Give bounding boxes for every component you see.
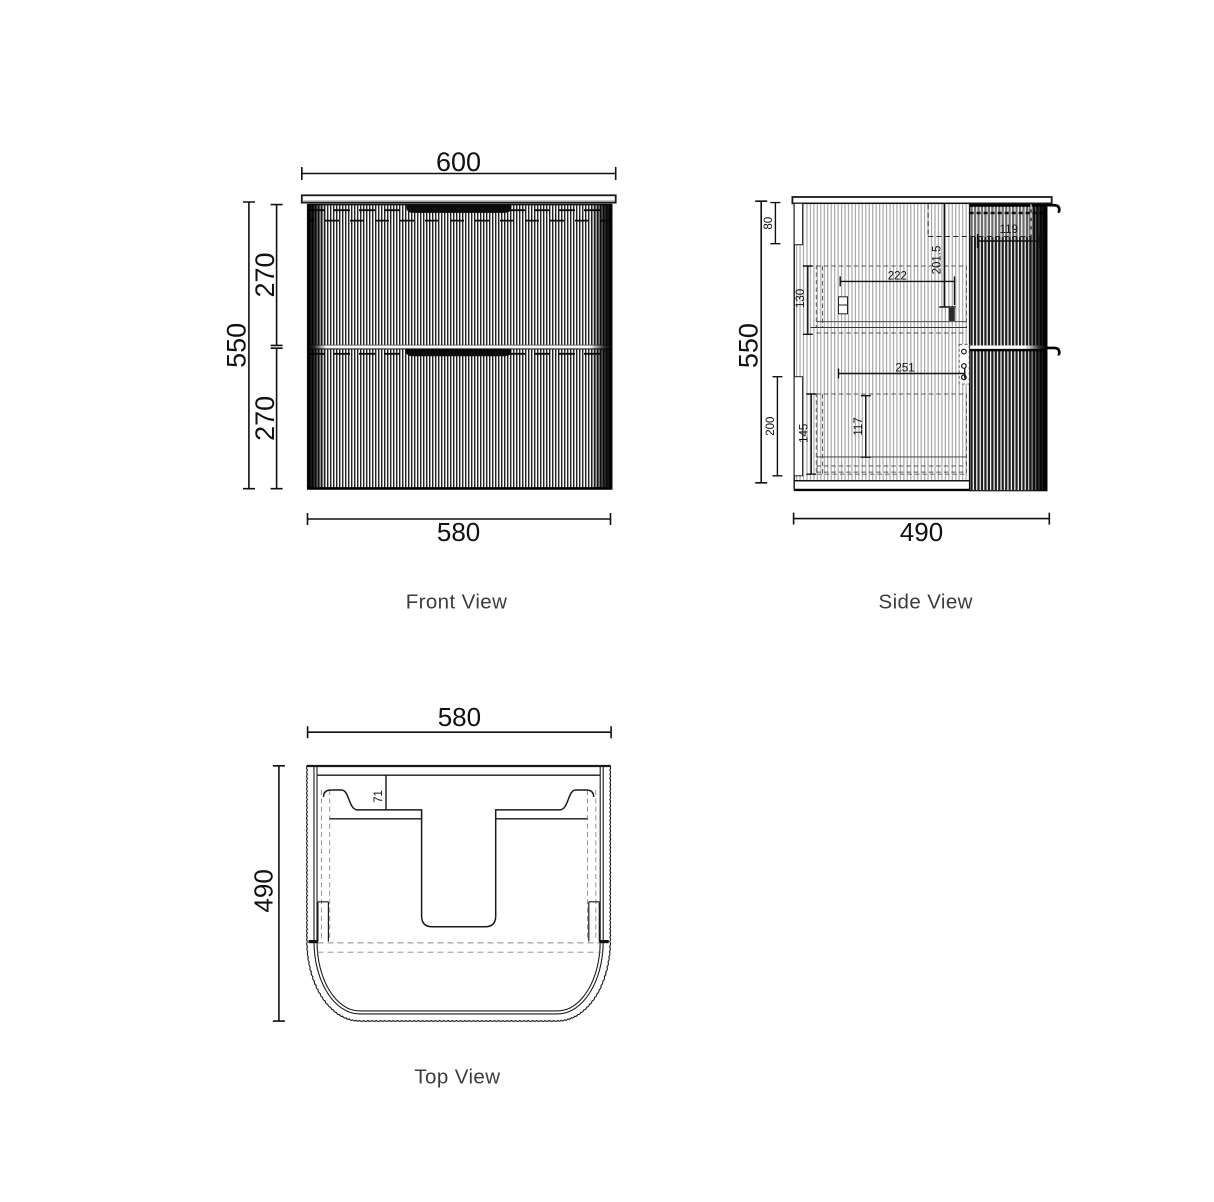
svg-text:490: 490 (249, 869, 279, 912)
svg-text:580: 580 (437, 517, 480, 547)
svg-text:550: 550 (734, 323, 764, 368)
svg-text:270: 270 (250, 252, 280, 297)
svg-text:Side View: Side View (879, 591, 973, 614)
svg-text:600: 600 (436, 147, 481, 177)
svg-text:490: 490 (900, 517, 943, 547)
svg-text:222: 222 (888, 270, 907, 282)
svg-text:Top View: Top View (414, 1066, 500, 1089)
svg-text:119: 119 (1000, 224, 1018, 236)
svg-text:145: 145 (799, 424, 811, 443)
svg-text:550: 550 (222, 323, 252, 368)
svg-text:580: 580 (438, 702, 481, 732)
svg-text:117: 117 (853, 417, 865, 435)
svg-text:251: 251 (895, 363, 914, 375)
svg-text:200: 200 (765, 417, 777, 436)
svg-text:Front View: Front View (406, 590, 508, 613)
svg-text:130: 130 (795, 289, 807, 308)
svg-text:71: 71 (373, 790, 385, 803)
svg-text:270: 270 (250, 396, 280, 441)
svg-text:80: 80 (763, 217, 775, 230)
svg-text:201.5: 201.5 (932, 246, 944, 275)
